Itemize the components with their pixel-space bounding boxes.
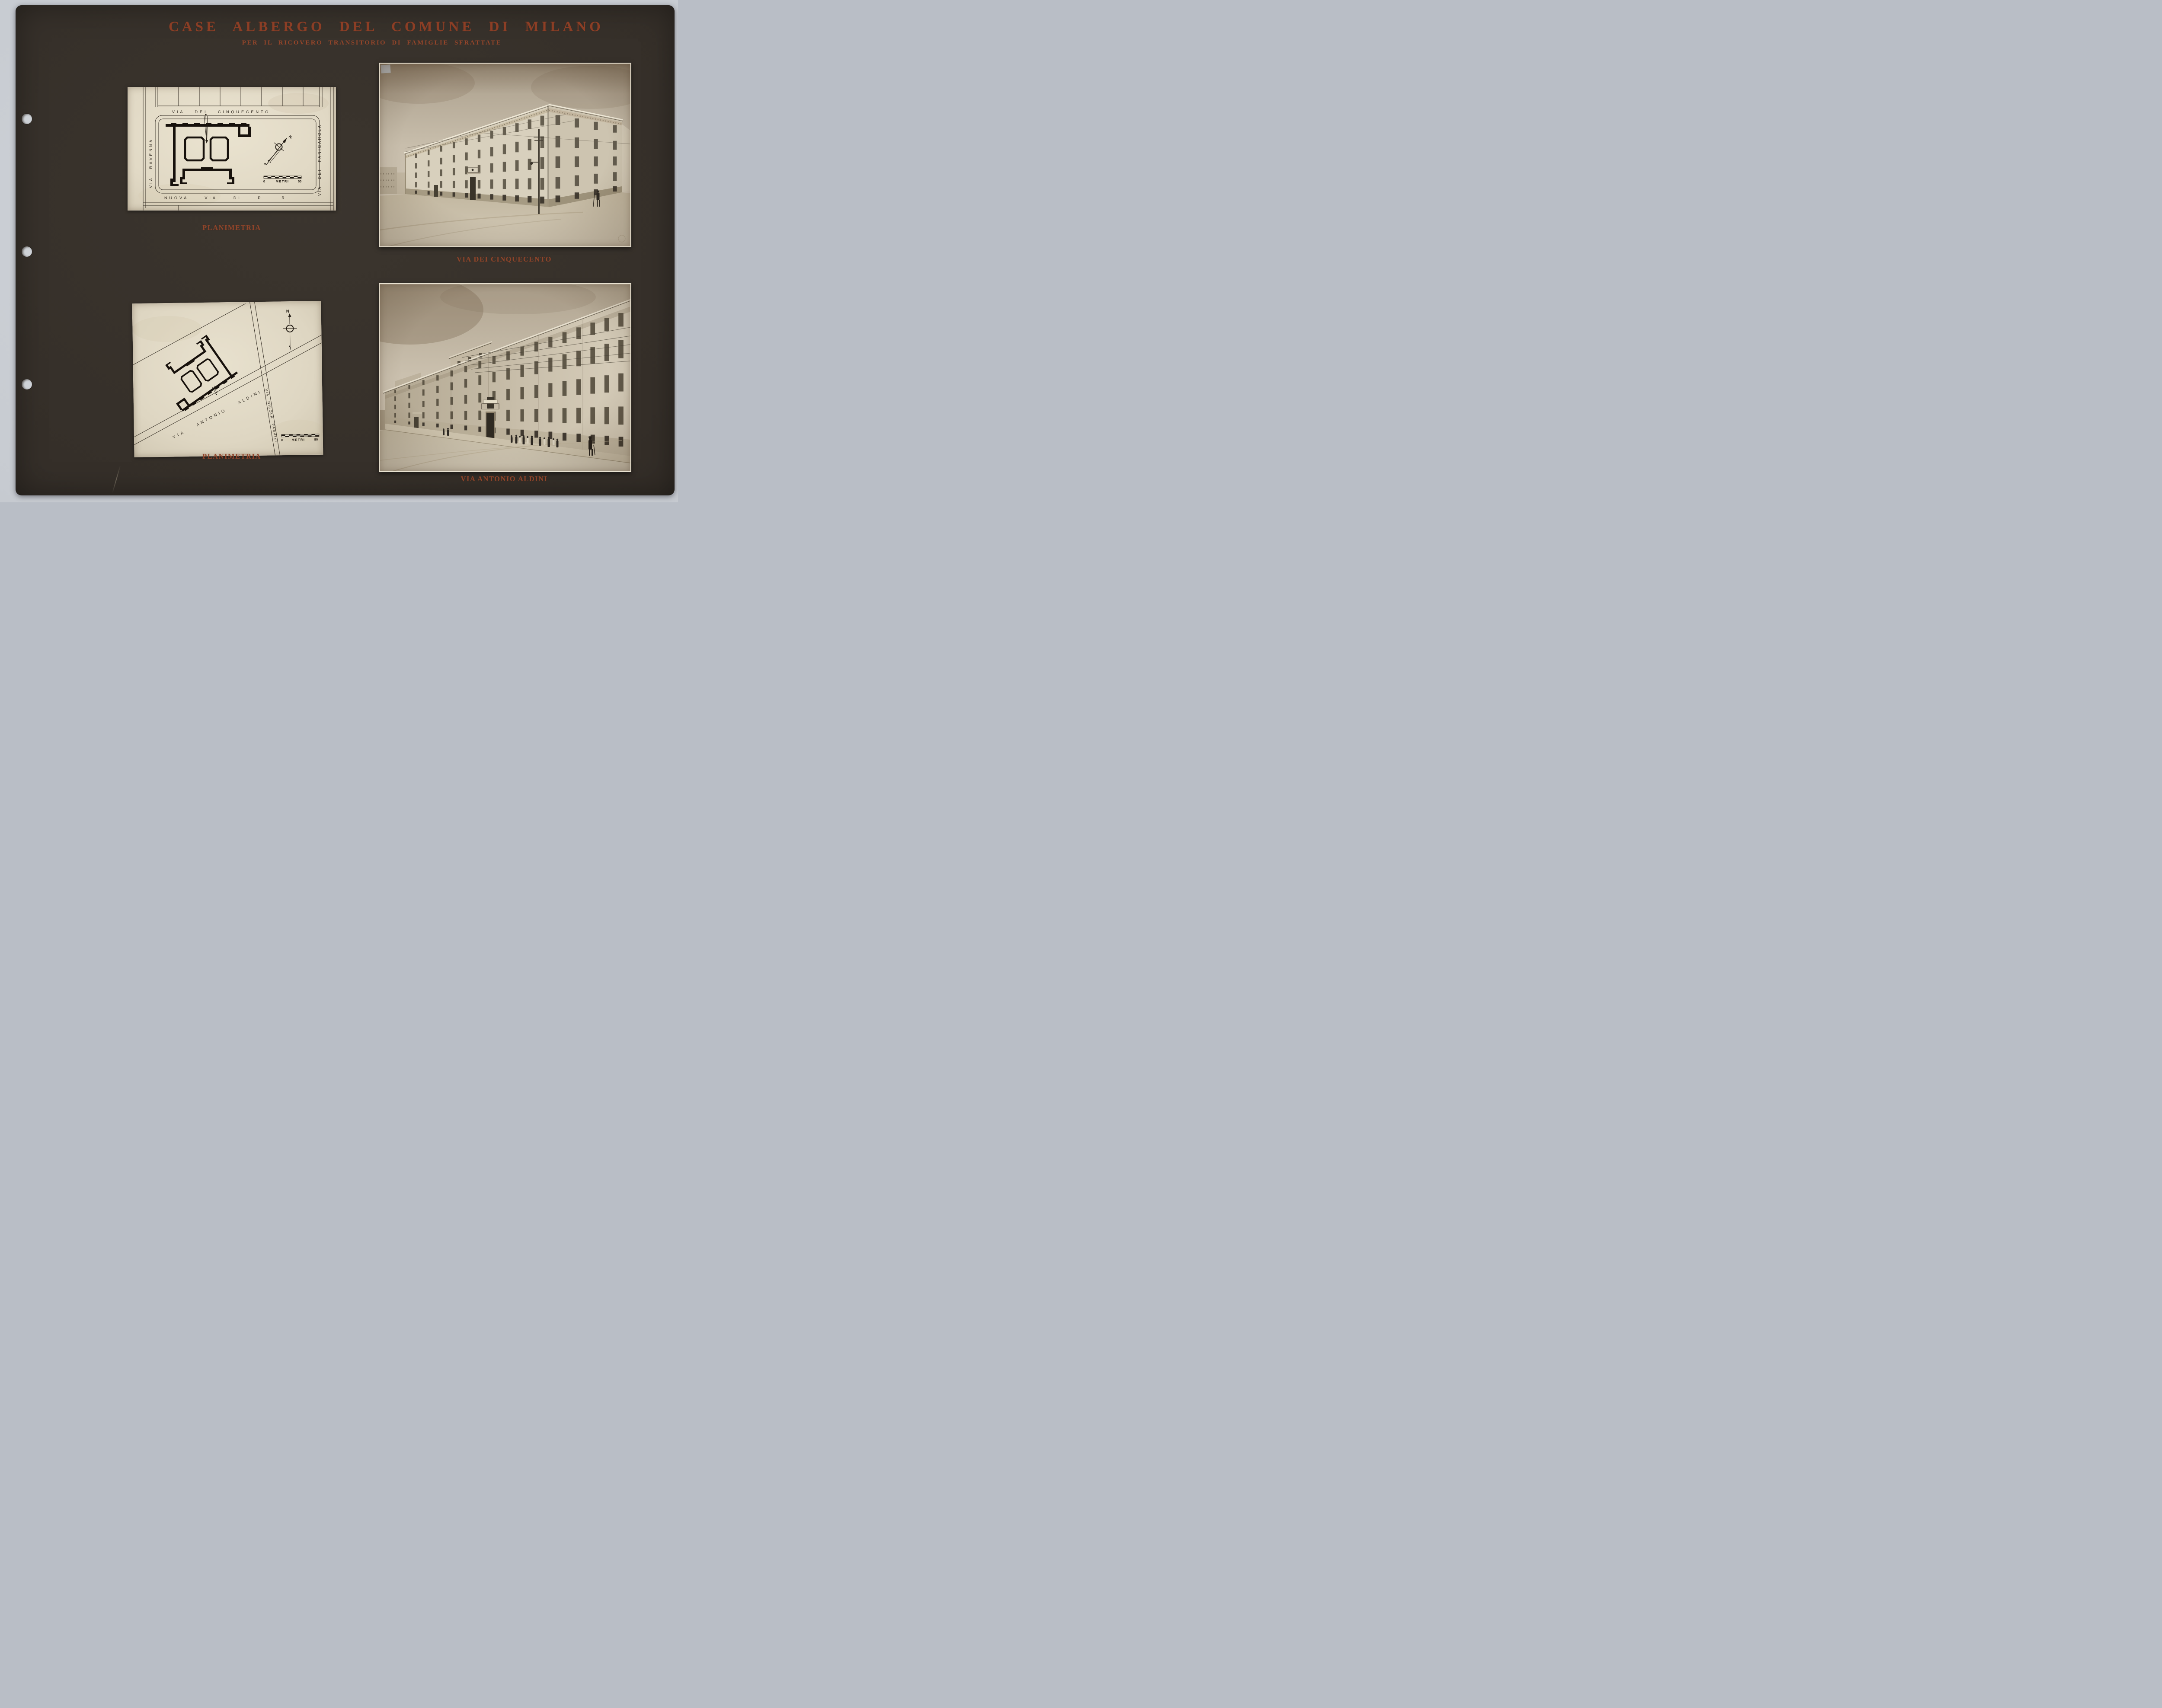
scale-unit: METRI <box>291 438 305 442</box>
site-plan-bottom: N 0 METRI 50 VIA ANTONIO ALDINI VIA NICO… <box>132 301 323 457</box>
building-photo-street-view <box>380 284 630 471</box>
scale-max: 50 <box>298 179 301 183</box>
photo-via-antonio-aldini <box>379 283 631 472</box>
album-scan: CASE ALBERGO DEL COMUNE DI MILANO PER IL… <box>0 0 678 502</box>
site-plan-bottom-drawing: N 0 METRI 50 VIA ANTONIO ALDINI VIA NICO… <box>132 301 323 457</box>
street-label-cinquecento: VIA DEI CINQUECENTO <box>172 110 270 114</box>
site-plan-top-drawing: N. 0 METRI 50 VIA DEI CINQUECENTO NUOVA … <box>128 87 336 211</box>
compass-north-label: N <box>286 309 289 314</box>
scale-max: 50 <box>314 437 318 441</box>
photo-via-dei-cinquecento <box>379 63 631 247</box>
caption-plan-top: PLANIMETRIA <box>128 223 336 232</box>
caption-plan-bottom: PLANIMETRIA <box>128 452 336 461</box>
street-label-nuova-via: NUOVA VIA DI P. R. <box>164 196 290 200</box>
scale-zero: 0 <box>281 438 283 442</box>
caption-photo-top: VIA DEI CINQUECENTO <box>379 255 630 264</box>
building-photo-corner-view <box>380 64 630 246</box>
hole-punch-top <box>22 114 32 124</box>
scale-zero: 0 <box>263 179 265 183</box>
page-title: CASE ALBERGO DEL COMUNE DI MILANO <box>169 19 575 35</box>
hole-punch-bottom <box>22 379 32 389</box>
street-label-ravenna: VIA RAVENNA <box>149 138 153 188</box>
site-plan-top: N. 0 METRI 50 VIA DEI CINQUECENTO NUOVA … <box>128 87 336 211</box>
hole-punch-middle <box>22 246 32 257</box>
street-label-panigarola: VIA DEI PANIGAROLA <box>317 124 322 196</box>
page-subtitle: PER IL RICOVERO TRANSITORIO DI FAMIGLIE … <box>169 39 575 47</box>
scale-unit: METRI <box>276 179 289 183</box>
caption-photo-bottom: VIA ANTONIO ALDINI <box>379 475 630 483</box>
